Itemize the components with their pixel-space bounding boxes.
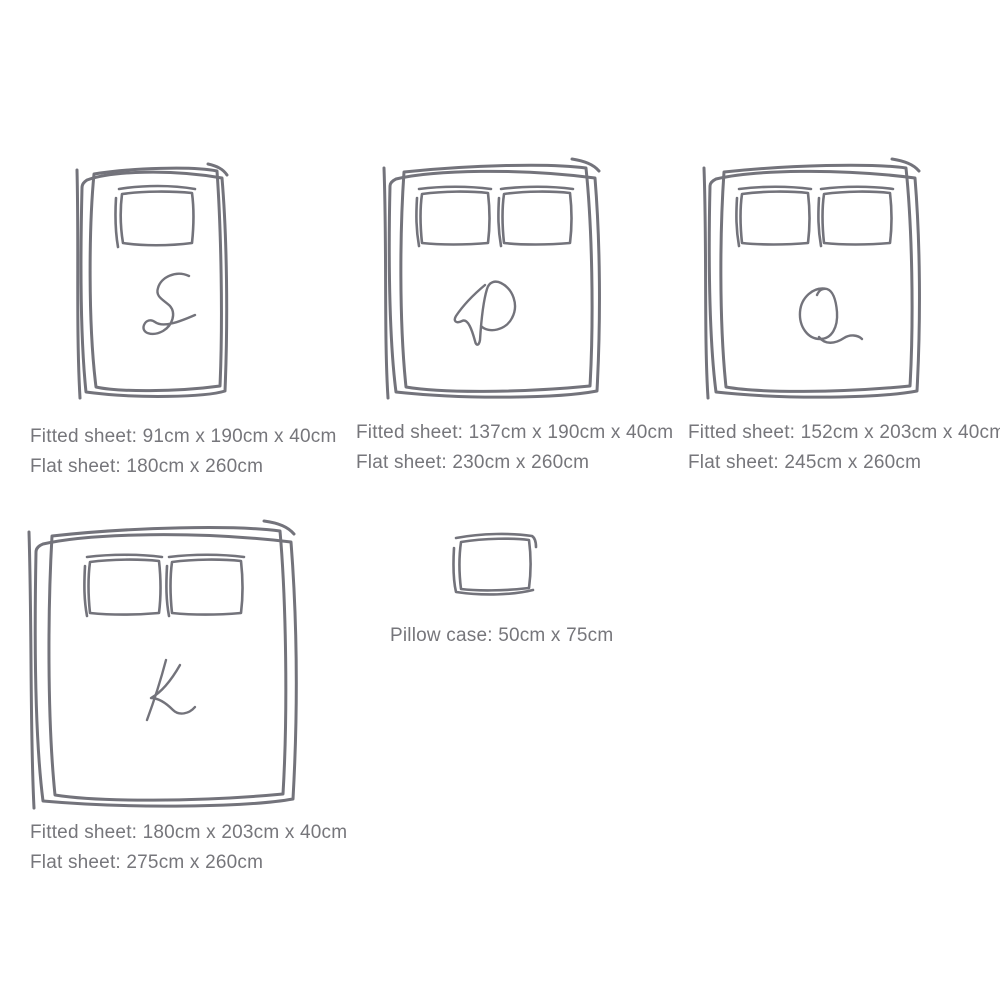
pillow-sketch [818, 187, 893, 246]
bed-outline [384, 159, 599, 398]
size-letter-glyph-s [143, 274, 195, 334]
queen-bed-sketch [698, 154, 933, 406]
pillow-case-outline [453, 534, 536, 595]
double-bed-sketch [378, 154, 613, 406]
flat-sheet-spec: Flat sheet: 230cm x 260cm [356, 448, 673, 478]
single-bed-sketch [70, 158, 240, 404]
pillow-case-spec: Pillow case: 50cm x 75cm [390, 621, 613, 651]
caption-pillow-case: Pillow case: 50cm x 75cm [390, 621, 613, 651]
pillow-sketch [416, 187, 491, 246]
pillow-sketch [84, 555, 162, 616]
fitted-sheet-spec: Fitted sheet: 152cm x 203cm x 40cm [688, 418, 1000, 448]
caption-single: Fitted sheet: 91cm x 190cm x 40cm Flat s… [30, 422, 337, 482]
bed-outline [704, 159, 919, 398]
flat-sheet-spec: Flat sheet: 275cm x 260cm [30, 848, 347, 878]
pillow-sketch [115, 186, 195, 247]
pillow-sketch [498, 187, 573, 246]
caption-king: Fitted sheet: 180cm x 203cm x 40cm Flat … [30, 818, 347, 878]
caption-double: Fitted sheet: 137cm x 190cm x 40cm Flat … [356, 418, 673, 478]
bed-outline [77, 164, 227, 398]
pillow-case-sketch [447, 528, 539, 600]
size-letter-glyph-k [147, 660, 195, 720]
bed-sheet-size-guide: Fitted sheet: 91cm x 190cm x 40cm Flat s… [0, 0, 1000, 1000]
king-bed-sketch [22, 514, 314, 816]
pillow-sketch [736, 187, 811, 246]
caption-queen: Fitted sheet: 152cm x 203cm x 40cm Flat … [688, 418, 1000, 478]
flat-sheet-spec: Flat sheet: 180cm x 260cm [30, 452, 337, 482]
bed-outline [29, 521, 296, 808]
size-letter-glyph-d [455, 282, 515, 345]
pillow-sketch [166, 555, 244, 616]
fitted-sheet-spec: Fitted sheet: 137cm x 190cm x 40cm [356, 418, 673, 448]
flat-sheet-spec: Flat sheet: 245cm x 260cm [688, 448, 1000, 478]
fitted-sheet-spec: Fitted sheet: 91cm x 190cm x 40cm [30, 422, 337, 452]
size-letter-glyph-q [800, 289, 862, 343]
fitted-sheet-spec: Fitted sheet: 180cm x 203cm x 40cm [30, 818, 347, 848]
